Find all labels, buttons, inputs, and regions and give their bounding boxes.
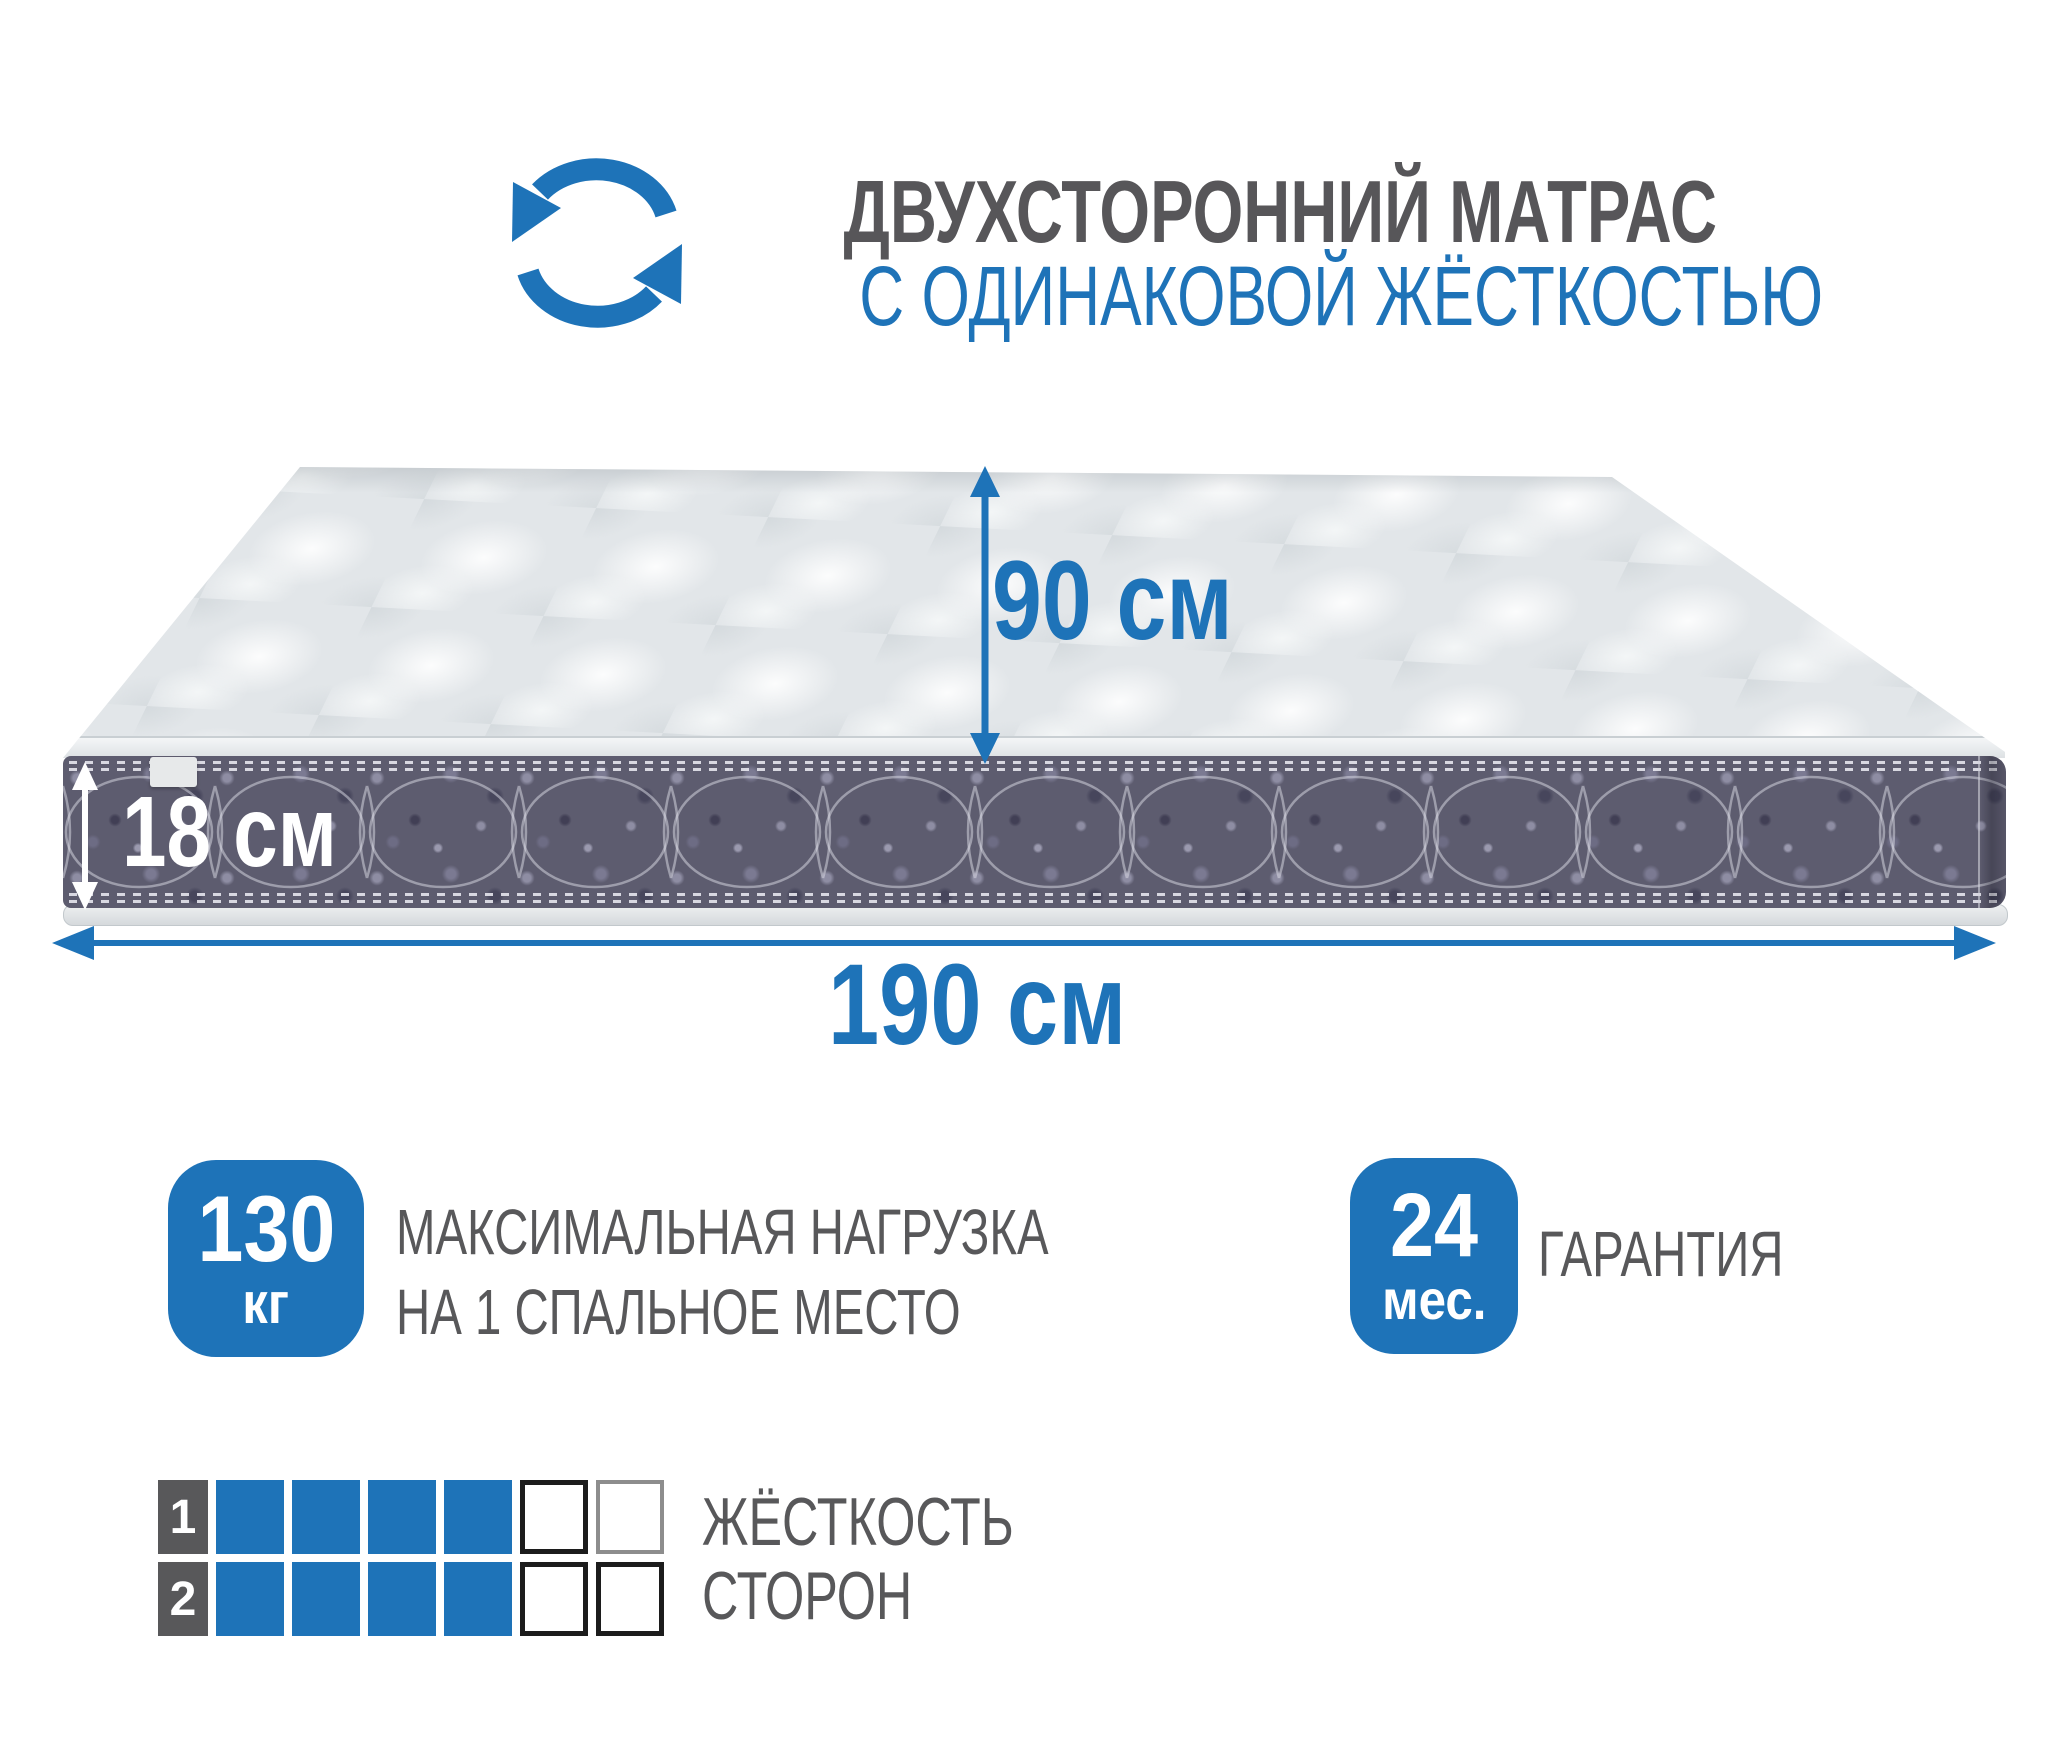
firmness-grid: 12 — [158, 1480, 664, 1644]
firmness-cell-empty — [520, 1480, 588, 1554]
warranty-unit: мес. — [1382, 1272, 1486, 1328]
rotate-arrows-icon — [488, 148, 706, 338]
firmness-cell-empty — [596, 1480, 664, 1554]
depth-dimension-label: 90 см — [992, 545, 1293, 657]
firmness-cell-filled — [368, 1480, 436, 1554]
max-load-unit: кг — [243, 1275, 290, 1333]
mattress-infographic: ДВУХСТОРОННИЙ МАТРАС С ОДИНАКОВОЙ ЖЁСТКО… — [0, 0, 2048, 1757]
mattress-back-edge-shade — [63, 467, 2005, 493]
firmness-cell-filled — [216, 1562, 284, 1636]
firmness-cell-filled — [216, 1480, 284, 1554]
stitch-line — [69, 768, 2000, 771]
firmness-label-line2: СТОРОН — [702, 1562, 986, 1630]
firmness-cell-empty — [520, 1562, 588, 1636]
max-load-label: МАКСИМАЛЬНАЯ НАГРУЗКА НА 1 СПАЛЬНОЕ МЕСТ… — [396, 1192, 1278, 1352]
warranty-badge: 24 мес. — [1350, 1158, 1518, 1354]
firmness-row-number: 2 — [158, 1562, 208, 1636]
firmness-cell-filled — [292, 1480, 360, 1554]
stitch-line — [69, 893, 2000, 896]
mattress-front-piping — [63, 736, 2005, 758]
length-dimension-label: 190 см — [828, 948, 1201, 1063]
stitch-line — [69, 900, 2000, 903]
warranty-label: ГАРАНТИЯ — [1538, 1222, 1870, 1286]
stitch-line — [69, 761, 2000, 764]
firmness-cell-filled — [368, 1562, 436, 1636]
mattress-right-end-cap — [1978, 756, 2006, 908]
firmness-row: 2 — [158, 1562, 664, 1636]
firmness-cell-empty — [596, 1562, 664, 1636]
page-title-line2: С ОДИНАКОВОЙ ЖЁСТКОСТЬЮ — [690, 254, 1720, 338]
warranty-value: 24 — [1390, 1184, 1478, 1270]
firmness-row: 1 — [158, 1480, 664, 1554]
firmness-cell-filled — [444, 1480, 512, 1554]
firmness-cell-filled — [444, 1562, 512, 1636]
firmness-row-number: 1 — [158, 1480, 208, 1554]
firmness-cell-filled — [292, 1562, 360, 1636]
page-title-line1: ДВУХСТОРОННИЙ МАТРАС — [690, 168, 1720, 256]
max-load-value: 130 — [197, 1184, 335, 1273]
max-load-badge: 130 кг — [168, 1160, 364, 1357]
thickness-dimension-label: 18 см — [122, 782, 391, 882]
firmness-label-line1: ЖЁСТКОСТЬ — [702, 1488, 1123, 1556]
